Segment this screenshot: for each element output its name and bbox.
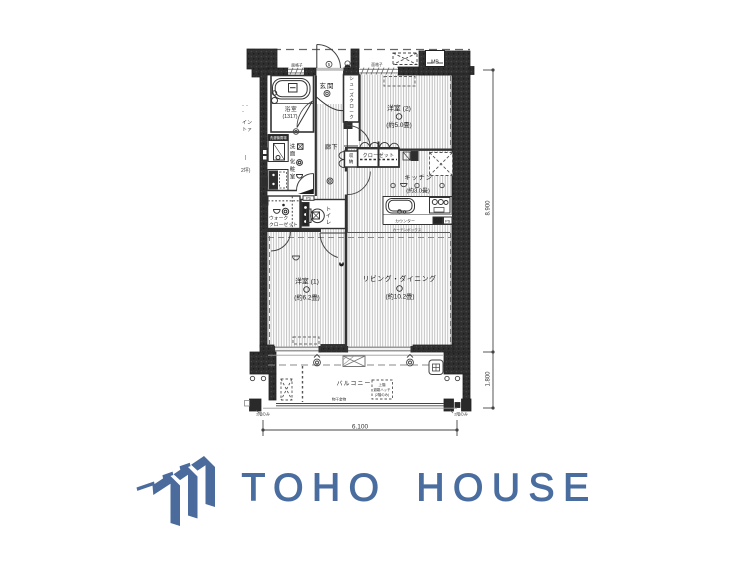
svg-text:(約3.0畳): (約3.0畳) [406,187,430,195]
svg-text:バルコニー: バルコニー [337,381,372,388]
svg-text:納: 納 [349,158,354,165]
svg-text:化: 化 [290,158,296,166]
svg-text:TOHO: TOHO [242,467,388,510]
svg-text:洗濯機置場: 洗濯機置場 [270,135,288,140]
svg-text:ュ: ュ [349,82,354,87]
svg-text:ト: ト [326,207,331,213]
svg-text:面: 面 [290,151,296,158]
svg-text:ー: ー [349,87,354,92]
svg-text:収: 収 [349,152,354,159]
svg-text:・: ・ [241,109,245,114]
svg-text:トァ: トァ [242,127,252,133]
svg-text:面格子: 面格子 [291,63,303,68]
svg-text:PS: PS [445,220,451,224]
svg-text:物干金物: 物干金物 [332,397,347,402]
svg-text:(約6.2畳): (約6.2畳) [294,293,320,302]
svg-text:8.900: 8.900 [486,200,492,216]
svg-text:シ: シ [349,76,354,81]
svg-text:2坪): 2坪) [241,167,251,174]
svg-text:粧: 粧 [290,165,296,173]
svg-text:6.100: 6.100 [352,424,369,431]
svg-text:ウォーク: ウォーク [269,215,288,222]
svg-text:室: 室 [290,173,296,181]
svg-text:HOUSE: HOUSE [416,467,597,510]
svg-text:レ: レ [326,220,331,226]
svg-text:リビング・ダイニング: リビング・ダイニング [363,274,437,283]
svg-text:1.800: 1.800 [486,371,492,387]
svg-text:イ: イ [326,214,331,220]
svg-text:上階: 上階 [378,382,386,387]
svg-text:キッチン: キッチン [404,174,432,182]
svg-text:浴室: 浴室 [285,105,298,113]
svg-text:カーテンボックス: カーテンボックス [393,227,422,232]
svg-text:面格子: 面格子 [371,62,383,67]
svg-text:洋室 (1): 洋室 (1) [295,277,319,286]
svg-text:ー: ー [349,109,354,114]
svg-text:(1317): (1317) [283,114,298,120]
svg-text:(2階のみ): (2階のみ) [375,392,389,397]
svg-text:クローゼット: クローゼット [363,152,395,159]
svg-text:玄関: 玄関 [320,81,335,90]
svg-text:洗: 洗 [290,143,296,151]
svg-text:ロ: ロ [349,104,354,109]
svg-text:(約5.0畳): (約5.0畳) [386,120,412,129]
svg-text:|: | [245,155,246,161]
svg-text:(約10.2畳): (約10.2畳) [385,292,414,301]
svg-text:洋室 (2): 洋室 (2) [387,104,411,113]
svg-text:MB: MB [431,60,439,66]
svg-text:・・: ・・ [241,103,249,108]
svg-text:PS: PS [306,197,311,201]
svg-text:2階のみ: 2階のみ [454,412,468,417]
svg-text:カウンター: カウンター [395,218,415,224]
svg-text:イン: イン [242,120,252,126]
svg-text:廊下: 廊下 [325,143,338,151]
svg-text:クローゼット: クローゼット [269,221,298,228]
svg-text:避難ハッチ: 避難ハッチ [374,387,392,392]
